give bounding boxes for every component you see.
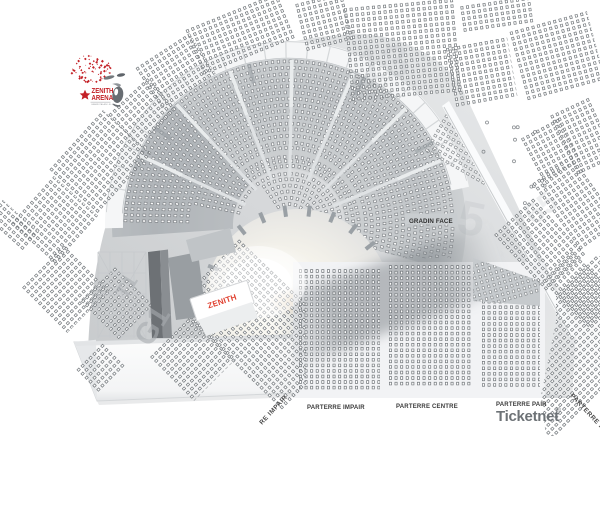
svg-text:®: ®: [556, 406, 561, 414]
svg-text:PARTERRE IMPAIR: PARTERRE IMPAIR: [307, 405, 365, 411]
svg-text:GRADIN FACE: GRADIN FACE: [409, 218, 453, 225]
svg-text:GRAND PALAIS LILLE: GRAND PALAIS LILLE: [91, 103, 114, 106]
svg-text:Ticketnet: Ticketnet: [496, 408, 559, 425]
svg-text:13: 13: [354, 33, 412, 92]
svg-text:P2: P2: [352, 283, 376, 305]
svg-text:ARENA: ARENA: [92, 95, 114, 103]
svg-text:PARTERRE CENTRE: PARTERRE CENTRE: [396, 404, 458, 410]
